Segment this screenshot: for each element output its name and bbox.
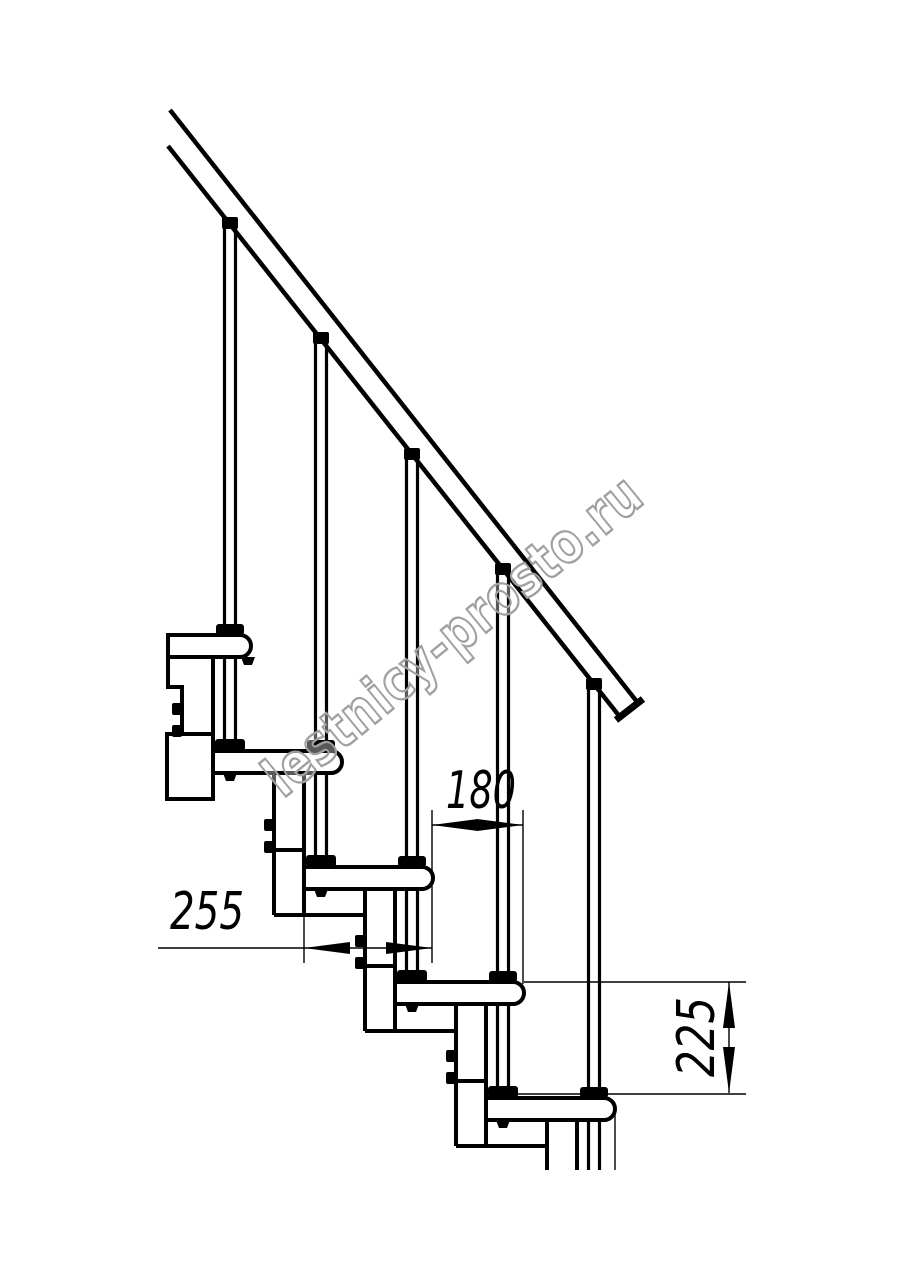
- spine-tube-4-collar: [488, 1086, 518, 1098]
- module-1-bolt-lower: [172, 725, 182, 737]
- spine-tubes: [225, 655, 600, 1170]
- tread-4-clamp-nub: [405, 1004, 419, 1012]
- arrowhead-255-right: [386, 942, 432, 954]
- arrowhead-255-left: [304, 942, 350, 954]
- baluster-1: [225, 225, 236, 630]
- drawing-page: 255 180 225 lestnicy-prosto.ru: [0, 0, 914, 1280]
- spine-tube-1-collar: [215, 739, 245, 751]
- spine-tube-3: [407, 887, 418, 979]
- module-3-bolt-upper: [355, 935, 365, 947]
- baluster-1-collar: [216, 624, 244, 635]
- tread-3: [304, 867, 433, 889]
- baluster-5: [589, 686, 600, 1093]
- module-1-bolt-upper: [172, 703, 182, 715]
- module-4-box: [456, 1006, 486, 1146]
- module-4-bolt-lower: [446, 1072, 456, 1084]
- tread-3-clamp-nub: [314, 889, 328, 897]
- dimension-label-225: 225: [667, 997, 727, 1077]
- spine-tube-3-collar: [397, 970, 427, 982]
- dimension-step-rise: 225: [490, 982, 746, 1094]
- tread-2-clamp-nub: [223, 773, 237, 781]
- spine-tube-4: [498, 1002, 509, 1095]
- spine-tube-5: [589, 1118, 600, 1170]
- tread-5: [486, 1098, 615, 1120]
- handrail-upper-edge: [170, 110, 638, 703]
- tread-1-clamp-nub: [241, 657, 255, 665]
- staircase-technical-drawing: 255 180 225 lestnicy-prosto.ru: [0, 0, 914, 1280]
- tread-5-clamp-nub: [496, 1120, 510, 1128]
- tread-1: [168, 635, 251, 657]
- spine-tube-2-collar: [306, 855, 336, 867]
- baluster-3-collar: [398, 856, 426, 867]
- support-module-1: [167, 659, 213, 799]
- module-4-bolt-upper: [446, 1050, 456, 1062]
- watermark: lestnicy-prosto.ru: [251, 462, 656, 810]
- dimension-label-255: 255: [170, 882, 244, 942]
- dimension-label-180: 180: [446, 761, 516, 821]
- handrail-end-cap: [616, 699, 643, 720]
- module-2-bolt-lower: [264, 841, 274, 853]
- tread-4: [395, 982, 524, 1004]
- module-3-box: [365, 891, 395, 1031]
- module-5-box: [547, 1122, 577, 1170]
- baluster-2: [316, 340, 327, 746]
- module-3-bolt-lower: [355, 957, 365, 969]
- module-2-bolt-upper: [264, 819, 274, 831]
- baluster-5-collar: [580, 1087, 608, 1098]
- baluster-4-collar: [489, 971, 517, 982]
- spine-tube-1: [225, 655, 236, 748]
- support-module-5: [547, 1122, 577, 1170]
